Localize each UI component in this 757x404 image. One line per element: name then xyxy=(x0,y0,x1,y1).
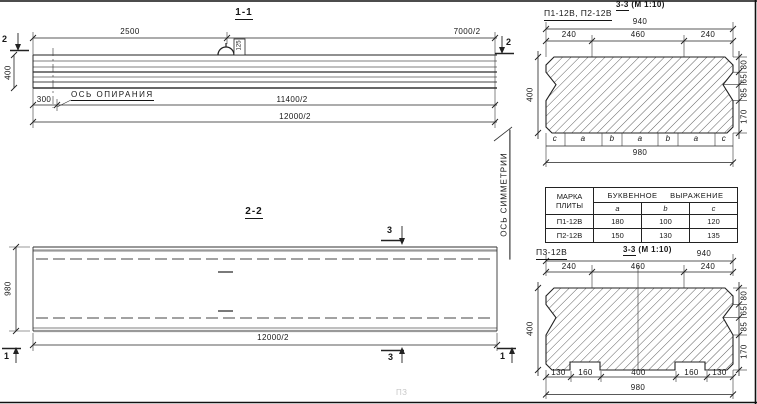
dim-12000-2-plan: 12000/2 xyxy=(246,333,300,342)
row2-b: 130 xyxy=(642,229,690,243)
table-col-c: c xyxy=(690,203,738,215)
dim-2500: 2500 xyxy=(105,27,155,36)
table-header-mark: МАРКАПЛИТЫ xyxy=(546,188,594,215)
sec-bot-dim-400-mid: 400 xyxy=(625,368,652,377)
cut-mark-3-top: 3 xyxy=(387,225,392,235)
letter-b-2: b xyxy=(658,134,678,143)
table-header-mark-line2: ПЛИТЫ xyxy=(556,201,583,210)
cut-mark-1-left: 1 xyxy=(4,351,9,361)
letter-a-3: a xyxy=(686,134,706,143)
dim-11400-2: 11400/2 xyxy=(266,95,318,104)
drawing-sheet: 1-1 2500 7000/2 300 11400/2 12000/2 400 … xyxy=(0,0,757,404)
table-header-expression: БУКВЕННОЕ ВЫРАЖЕНИЕ xyxy=(594,188,738,203)
sec-bot-dim-460: 460 xyxy=(620,262,656,271)
table-col-b: b xyxy=(642,203,690,215)
sec-bot-dim-130-right: 130 xyxy=(706,368,733,377)
row1-mark: П1-12В xyxy=(546,215,594,229)
symmetry-axis-label: ОСЬ СИММЕТРИИ xyxy=(499,130,510,260)
cut-mark-2-right: 2 xyxy=(506,37,511,47)
support-axis-label: ОСЬ ОПИРАНИЯ xyxy=(71,90,154,101)
scan-artifact-text: ПЗ xyxy=(396,388,407,397)
view-1-1-title: 1-1 xyxy=(228,7,260,19)
dim-12000-2-elevation: 12000/2 xyxy=(268,112,322,121)
section-bottom-cross-section xyxy=(546,288,733,370)
row2-c: 135 xyxy=(690,229,738,243)
sec-top-dim-170: 170 xyxy=(739,108,748,126)
section-bottom xyxy=(538,254,747,399)
letter-b-1: b xyxy=(602,134,622,143)
table-header-mark-line1: МАРКА xyxy=(557,192,583,201)
sec-top-dim-240-left: 240 xyxy=(551,30,587,39)
sec-top-dim-940: 940 xyxy=(622,17,658,26)
sec-top-dim-240-right: 240 xyxy=(690,30,726,39)
section-top-cross-section xyxy=(546,57,733,133)
letter-a-1: a xyxy=(573,134,593,143)
sec-bot-dim-940: 940 xyxy=(688,249,720,258)
cut-mark-2-left: 2 xyxy=(2,34,7,44)
sec-top-dim-980: 980 xyxy=(622,148,658,157)
view-1-1-dimensions xyxy=(14,32,497,128)
table-row: П1-12В 180 100 120 xyxy=(546,215,738,229)
sec-top-dim-460: 460 xyxy=(620,30,656,39)
section-top-heading: 3-3 (М 1:10) xyxy=(616,0,665,9)
sec-bot-dim-160-right: 160 xyxy=(678,368,705,377)
letter-c-1: c xyxy=(545,134,565,143)
letter-a-2: a xyxy=(630,134,650,143)
row1-b: 100 xyxy=(642,215,690,229)
section-top-plates-label: П1-12В, П2-12В xyxy=(544,9,612,21)
sec-bot-dim-160-left: 160 xyxy=(572,368,599,377)
section-bottom-title: 3-3 xyxy=(623,245,636,256)
view-1-1-cut-marks xyxy=(10,33,514,54)
view-2-2-title-text: 2-2 xyxy=(245,206,262,219)
sec-bot-dim-400: 400 xyxy=(525,316,534,342)
sec-bot-dim-980: 980 xyxy=(620,383,656,392)
dim-980-plan: 980 xyxy=(3,276,12,302)
sec-bot-dim-240-right: 240 xyxy=(690,262,726,271)
loop-tag-label: 125 xyxy=(237,37,244,53)
letter-c-2: c xyxy=(714,134,734,143)
row2-a: 150 xyxy=(594,229,642,243)
table-col-a: a xyxy=(594,203,642,215)
sec-top-dim-85: 85 xyxy=(739,84,748,102)
row1-a: 180 xyxy=(594,215,642,229)
sec-bot-dim-85: 85 xyxy=(739,318,748,336)
view-2-2-title: 2-2 xyxy=(238,206,270,218)
row2-mark: П2-12В xyxy=(546,229,594,243)
dim-300: 300 xyxy=(25,95,63,104)
row1-c: 120 xyxy=(690,215,738,229)
view-2-2-plan xyxy=(33,247,497,331)
section-top-title: 3-3 xyxy=(616,0,629,11)
section-bottom-scale: (М 1:10) xyxy=(638,245,671,254)
section-bottom-plate-label: П3-12В xyxy=(536,248,567,260)
lifting-loop xyxy=(218,47,234,55)
view-1-1-beam xyxy=(33,39,497,88)
sec-bot-dim-170: 170 xyxy=(739,343,748,361)
dim-400-elevation: 400 xyxy=(3,60,12,86)
cut-mark-1-right: 1 xyxy=(500,351,505,361)
plate-spec-table: МАРКАПЛИТЫ БУКВЕННОЕ ВЫРАЖЕНИЕ a b c П1-… xyxy=(545,187,738,243)
table-row: П2-12В 150 130 135 xyxy=(546,229,738,243)
section-top xyxy=(538,22,747,167)
sec-top-dim-400: 400 xyxy=(525,82,534,108)
sec-bot-dim-240-left: 240 xyxy=(551,262,587,271)
section-top-scale: (М 1:10) xyxy=(631,0,664,9)
sec-bot-dim-130-left: 130 xyxy=(545,368,572,377)
section-bottom-heading: 3-3 (М 1:10) xyxy=(623,245,672,254)
dim-7000-2: 7000/2 xyxy=(440,27,494,36)
view-2-2-dimensions xyxy=(9,127,512,351)
cut-mark-3-bottom: 3 xyxy=(388,352,393,362)
view-1-1-title-text: 1-1 xyxy=(235,7,252,20)
